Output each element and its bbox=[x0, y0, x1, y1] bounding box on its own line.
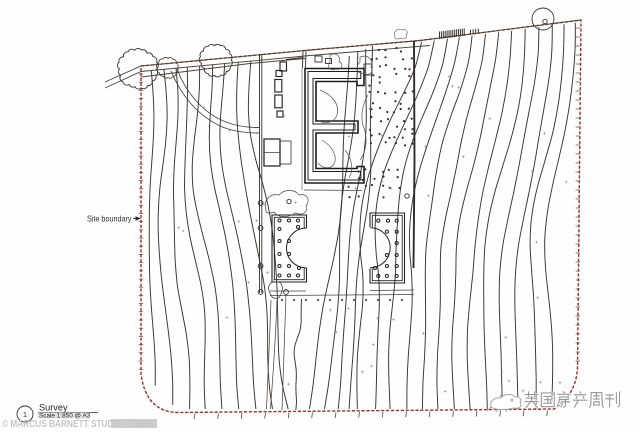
svg-text:Survey: Survey bbox=[39, 403, 68, 413]
svg-text:© MARCUS BARNETT STUDIO / SWNS: © MARCUS BARNETT STUDIO / SWNS bbox=[2, 419, 154, 428]
svg-text:1: 1 bbox=[23, 410, 27, 419]
svg-text:Site boundary: Site boundary bbox=[87, 215, 132, 224]
